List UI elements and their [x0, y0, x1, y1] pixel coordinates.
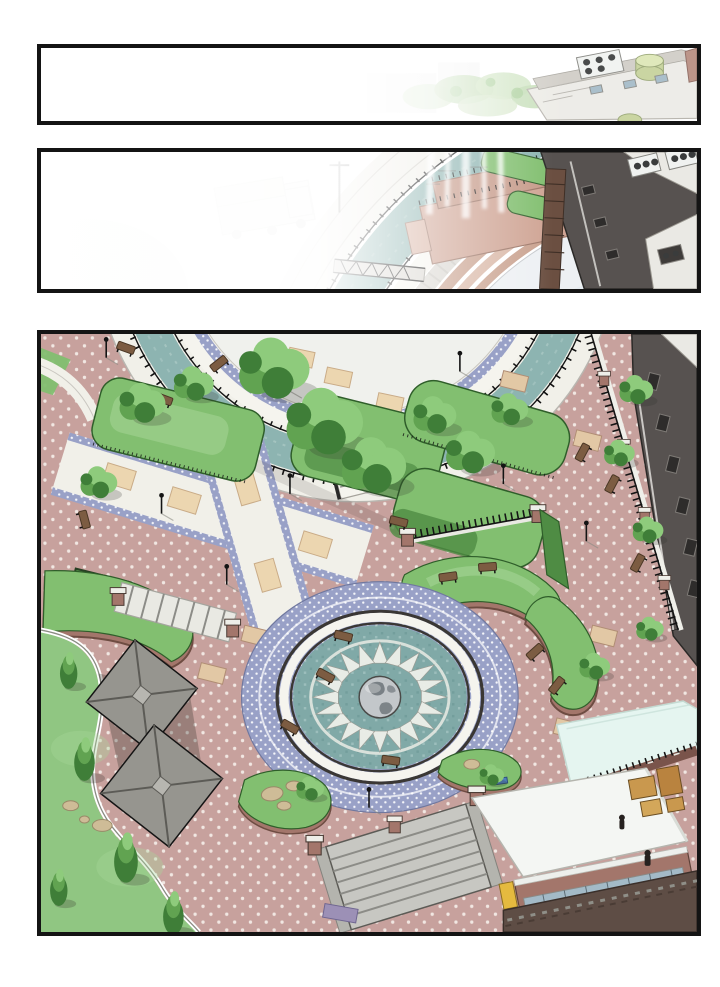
panel-3-park-plaza [37, 330, 701, 936]
panel-1-rooftop-fade [37, 44, 701, 125]
white-fade [41, 152, 697, 289]
pedestrian [644, 850, 650, 866]
panel-2-amphitheater [37, 148, 701, 293]
pedestrian [619, 815, 625, 830]
comic-page [0, 0, 720, 987]
panel-2-artwork [41, 152, 697, 289]
panel-3-artwork [41, 334, 697, 932]
globe-sculpture [359, 676, 400, 717]
panel-1-artwork [41, 48, 697, 121]
